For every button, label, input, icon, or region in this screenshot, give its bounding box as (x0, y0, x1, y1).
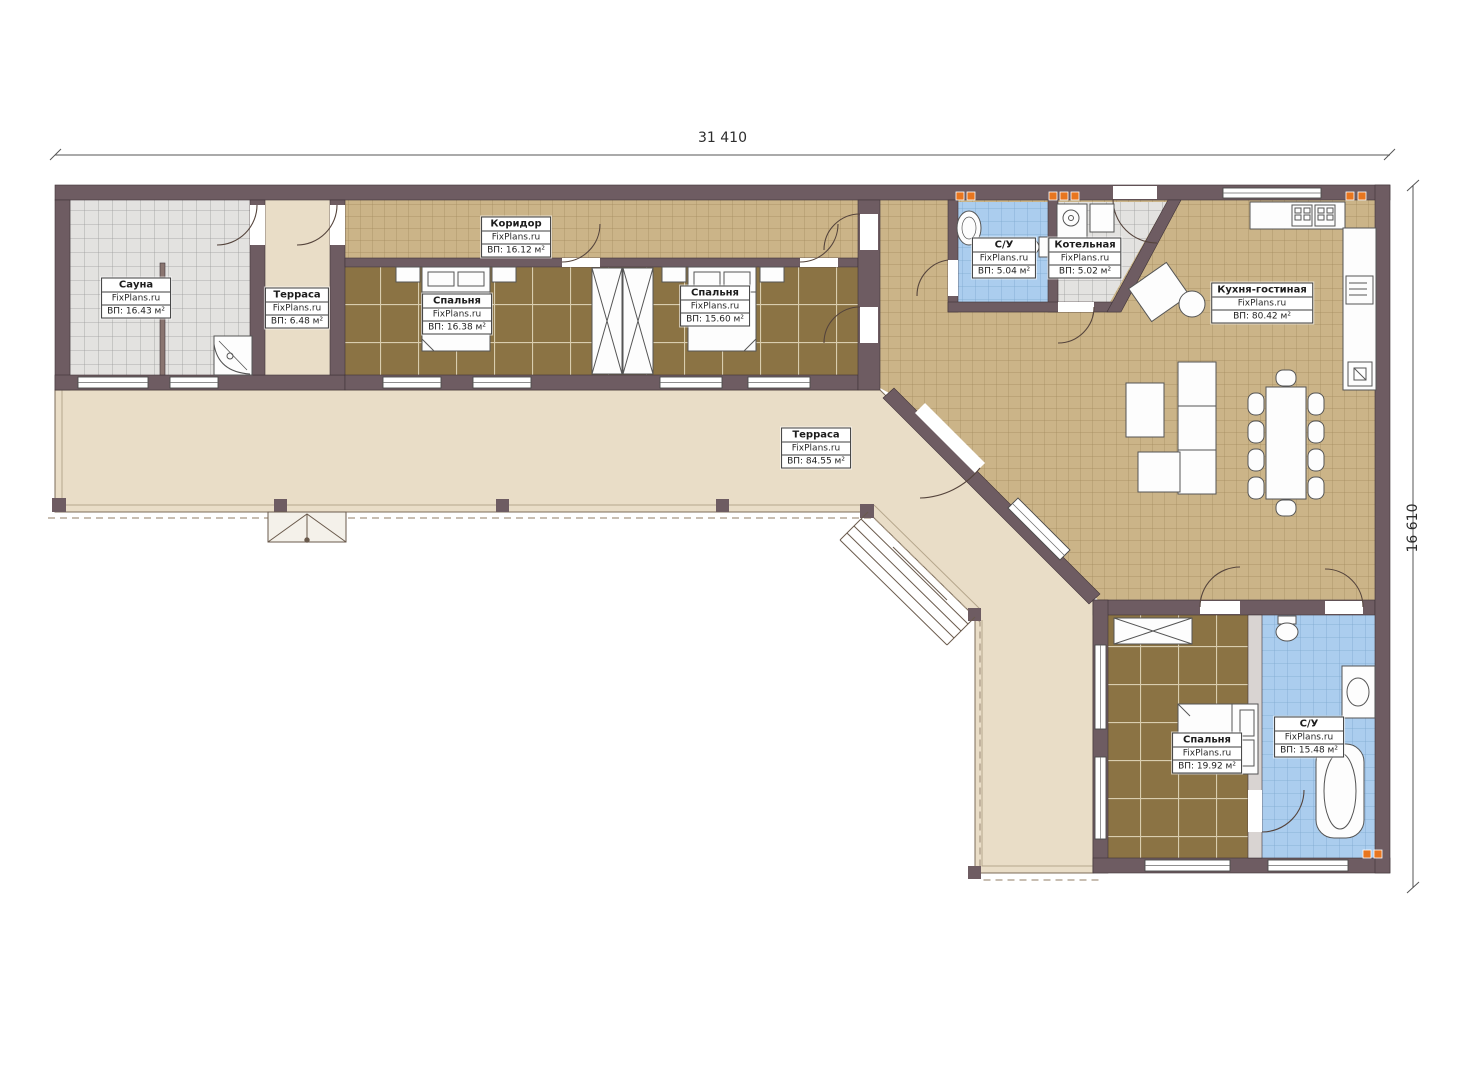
bathroom2-toilet-icon (1276, 616, 1298, 641)
terrace-big-floor (55, 390, 1093, 873)
floor-plan-drawing (0, 0, 1474, 1080)
room-label-bathroom-1: С/У FixPlans.ru ВП: 5.04 м² (972, 238, 1036, 279)
closet3-icon (1114, 618, 1192, 644)
room-label-bedroom-3: Спальня FixPlans.ru ВП: 19.92 м² (1172, 733, 1242, 774)
room-label-bedroom-1: Спальня FixPlans.ru ВП: 16.38 м² (422, 294, 492, 335)
wardrobe-icons (592, 268, 653, 374)
dimension-height-label: 16 610 (1405, 493, 1421, 563)
bathtub-icon (1316, 744, 1364, 838)
bathroom2-sink-icon (1342, 666, 1375, 718)
room-label-boiler-room: Котельная FixPlans.ru ВП: 5.02 м² (1048, 238, 1121, 279)
steps-straight-icon (268, 512, 346, 542)
entry-steps (268, 512, 975, 645)
room-label-bedroom-2: Спальня FixPlans.ru ВП: 15.60 м² (680, 286, 750, 327)
shower-icon (214, 336, 252, 375)
room-label-terrace-big: Терраса FixPlans.ru ВП: 84.55 м² (781, 428, 851, 469)
room-label-bathroom-2: С/У FixPlans.ru ВП: 15.48 м² (1274, 717, 1344, 758)
room-label-corridor: Коридор FixPlans.ru ВП: 16.12 м² (481, 217, 551, 258)
terrace-posts (52, 498, 981, 879)
room-label-sauna: Сауна FixPlans.ru ВП: 16.43 м² (101, 278, 171, 319)
room-label-terrace-small: Терраса FixPlans.ru ВП: 6.48 м² (265, 288, 329, 329)
floor-plan-page: 31 410 16 610 (0, 0, 1474, 1080)
room-label-kitchen-living: Кухня-гостиная FixPlans.ru ВП: 80.42 м² (1211, 283, 1313, 324)
dimension-width-label: 31 410 (55, 130, 1390, 146)
